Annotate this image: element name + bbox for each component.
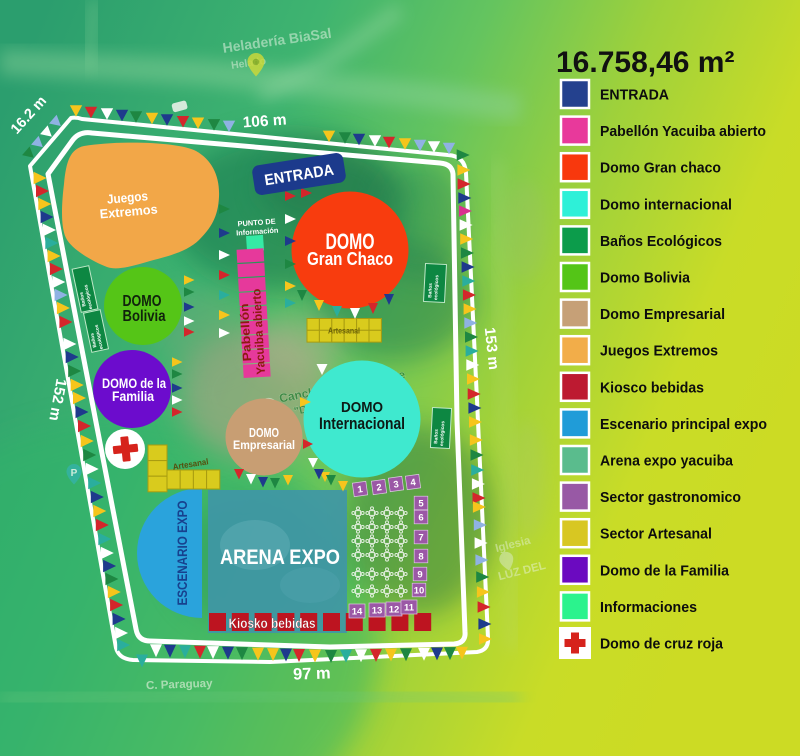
svg-text:13: 13	[372, 605, 383, 616]
svg-text:Pabellón Yacuiba abierto: Pabellón Yacuiba abierto	[600, 123, 766, 140]
svg-text:ESCENARIO EXPO: ESCENARIO EXPO	[175, 501, 190, 606]
svg-text:C. Paraguay: C. Paraguay	[146, 678, 213, 692]
svg-text:Baños: Baños	[433, 429, 440, 444]
svg-text:Domo Empresarial: Domo Empresarial	[600, 306, 725, 323]
svg-text:Baños: Baños	[427, 283, 434, 298]
svg-text:Familia: Familia	[112, 388, 154, 404]
svg-text:P: P	[71, 468, 78, 479]
svg-text:Escenario principal expo: Escenario principal expo	[600, 416, 767, 433]
svg-text:ENTRADA: ENTRADA	[600, 87, 669, 104]
svg-text:Baños Ecológicos: Baños Ecológicos	[600, 233, 722, 250]
svg-text:ARENA EXPO: ARENA EXPO	[220, 546, 340, 569]
svg-text:Domo Bolivia: Domo Bolivia	[600, 270, 691, 287]
svg-text:14: 14	[352, 606, 363, 617]
svg-text:Arena expo yacuiba: Arena expo yacuiba	[600, 453, 734, 470]
svg-text:Internacional: Internacional	[319, 414, 405, 433]
svg-text:Sector Artesanal: Sector Artesanal	[600, 526, 712, 543]
svg-text:106 m: 106 m	[242, 111, 287, 131]
svg-text:7: 7	[418, 532, 423, 543]
svg-text:Gran Chaco: Gran Chaco	[307, 249, 393, 269]
svg-text:Domo internacional: Domo internacional	[600, 196, 732, 213]
svg-text:Kiosco bebidas: Kiosco bebidas	[600, 379, 704, 396]
svg-text:Bolivia: Bolivia	[123, 308, 166, 325]
svg-text:Sector gastronomico: Sector gastronomico	[600, 489, 741, 506]
svg-text:8: 8	[418, 551, 423, 562]
svg-text:Artesanal: Artesanal	[328, 327, 360, 336]
svg-text:11: 11	[404, 602, 415, 613]
svg-text:Informaciones: Informaciones	[600, 599, 697, 616]
svg-text:12: 12	[389, 604, 400, 615]
svg-text:Juegos Extremos: Juegos Extremos	[600, 343, 718, 360]
svg-text:Domo Gran chaco: Domo Gran chaco	[600, 160, 721, 177]
svg-text:Kiosko bebidas: Kiosko bebidas	[229, 616, 316, 631]
svg-text:97 m: 97 m	[293, 664, 331, 683]
svg-text:Empresarial: Empresarial	[233, 438, 295, 452]
svg-text:Domo de la Familia: Domo de la Familia	[600, 562, 730, 579]
svg-text:16.758,46 m²: 16.758,46 m²	[556, 46, 734, 79]
svg-text:10: 10	[414, 585, 425, 596]
svg-text:Domo de cruz roja: Domo de cruz roja	[600, 636, 724, 653]
svg-text:9: 9	[417, 569, 422, 580]
svg-text:6: 6	[418, 512, 423, 523]
svg-text:5: 5	[418, 498, 424, 509]
